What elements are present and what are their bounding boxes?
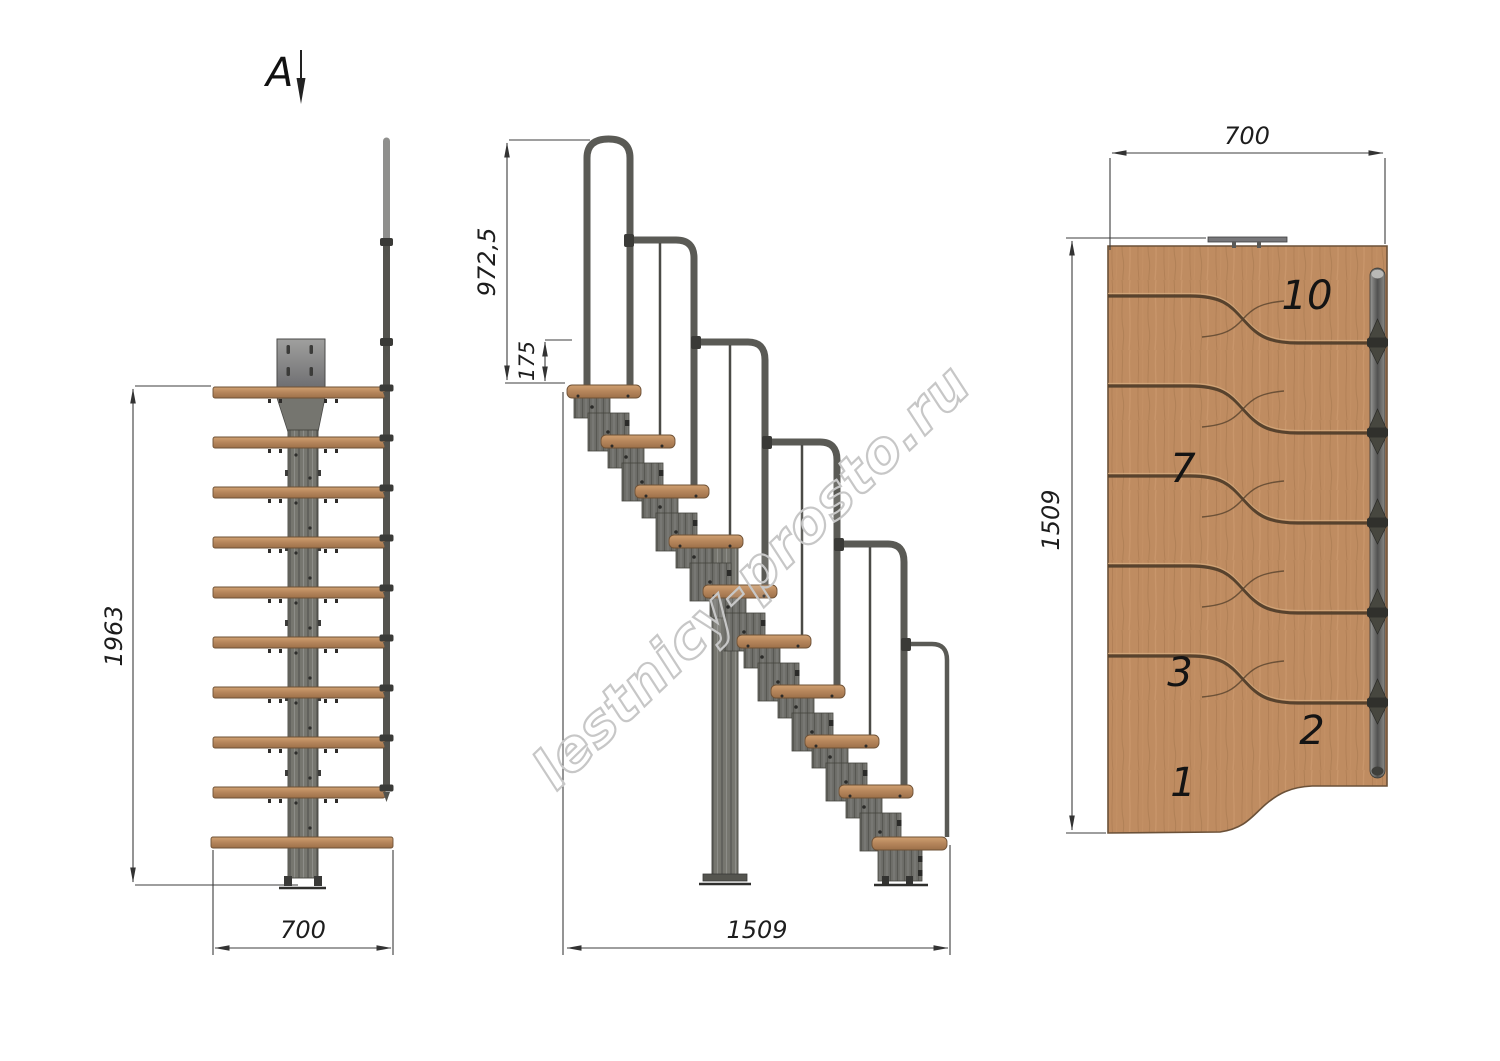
dim-plan-width-label: 700 [1224,122,1270,150]
side-view [567,139,947,885]
tread-number-1: 1 [1170,760,1195,806]
staircase-drawing: A [0,0,1500,1061]
dim-rail-offset-label: 175 [515,341,539,381]
dim-side-length-label: 1509 [726,916,787,944]
dim-front-width-label: 700 [280,916,326,944]
plan-tread-panel [1108,246,1387,833]
technical-drawing-page: A [0,0,1500,1061]
tread-number-2: 2 [1299,708,1324,754]
handrail-run-4 [840,544,904,785]
dim-front-height-label: 1963 [100,605,128,666]
section-cut-arrow-icon [297,50,306,104]
front-bottom-tread [211,837,393,848]
front-wall-plate [277,339,325,387]
plan-view: 10 7 3 2 1 [1108,237,1388,833]
dim-plan-depth-label: 1509 [1037,489,1065,550]
side-bottom-tread [872,837,947,850]
handrail-run-5 [907,644,947,837]
section-label: A [263,50,293,96]
side-bottom-module [874,850,928,885]
section-label-group: A [263,50,306,104]
tread-number-10: 10 [1282,273,1333,319]
tread-number-3: 3 [1167,650,1192,696]
dim-handrail-height-label: 972,5 [473,228,501,297]
handrail-top-loop [587,139,630,385]
front-view [211,141,394,888]
tread-number-7: 7 [1170,446,1196,492]
plan-handrail-pole [1367,268,1388,778]
